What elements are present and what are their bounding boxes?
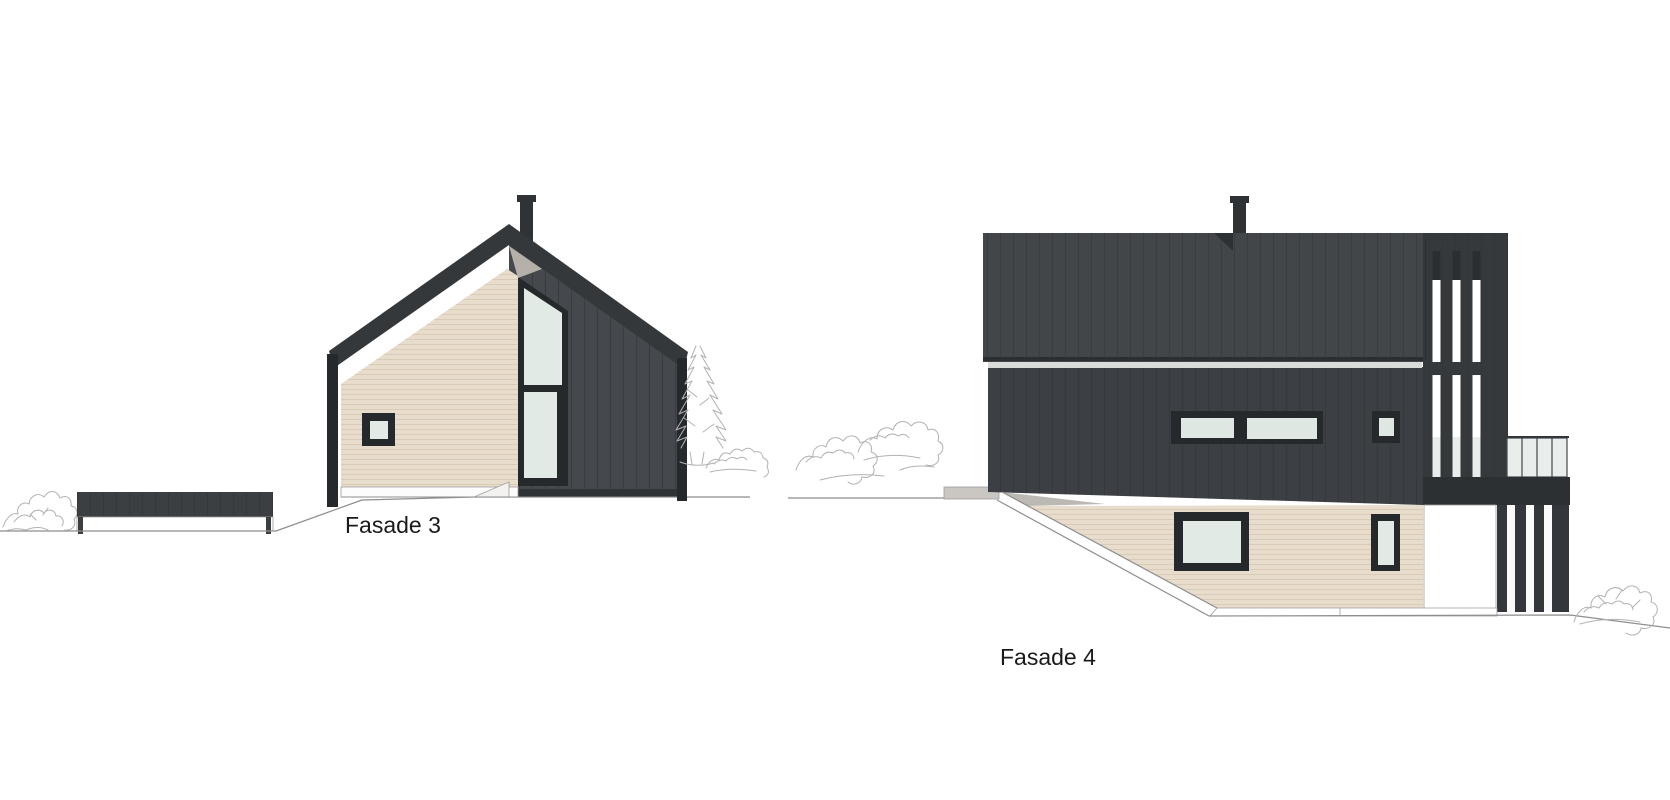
bush-sketch-left <box>796 421 943 484</box>
fasade-4-label: Fasade 4 <box>1000 644 1096 670</box>
bush-sketch-right <box>1574 586 1657 635</box>
plinth-dark <box>518 489 686 497</box>
fasade-3-elevation: Fasade 3 <box>0 195 768 538</box>
basement-level <box>1028 505 1423 608</box>
architectural-drawing: Fasade 3 <box>0 0 1670 800</box>
planter-box <box>77 492 273 534</box>
slat-tower <box>1423 233 1508 505</box>
under-balcony-volume <box>1497 505 1569 612</box>
house-fasade-3 <box>327 195 688 507</box>
tall-window <box>518 277 568 486</box>
basement-window-large <box>1174 512 1249 571</box>
upper-small-window <box>1372 411 1400 443</box>
small-window <box>362 413 395 446</box>
window-band-pane-right <box>1247 418 1317 439</box>
planter-face <box>77 517 273 531</box>
roof-band-texture <box>983 233 1427 362</box>
bush-sketch-right <box>706 448 768 477</box>
timber-gable-texture <box>341 269 518 487</box>
tall-window-lower-pane <box>524 392 557 478</box>
white-wall <box>1424 505 1496 609</box>
fasade-3-label: Fasade 3 <box>345 512 441 538</box>
window-band-pane-left <box>1181 418 1234 438</box>
balcony-railing <box>1505 437 1569 477</box>
ground-line-right <box>1209 615 1670 628</box>
bush-sketch-left <box>3 491 77 531</box>
balcony-slab <box>1423 477 1570 505</box>
fasade-4-elevation: Fasade 4 <box>788 196 1670 670</box>
basement-window-narrow <box>1371 514 1400 571</box>
planter-texture <box>77 492 273 517</box>
corner-post-left <box>327 354 338 507</box>
roof-band-edge <box>983 357 1427 361</box>
upper-window-band <box>1171 411 1323 444</box>
